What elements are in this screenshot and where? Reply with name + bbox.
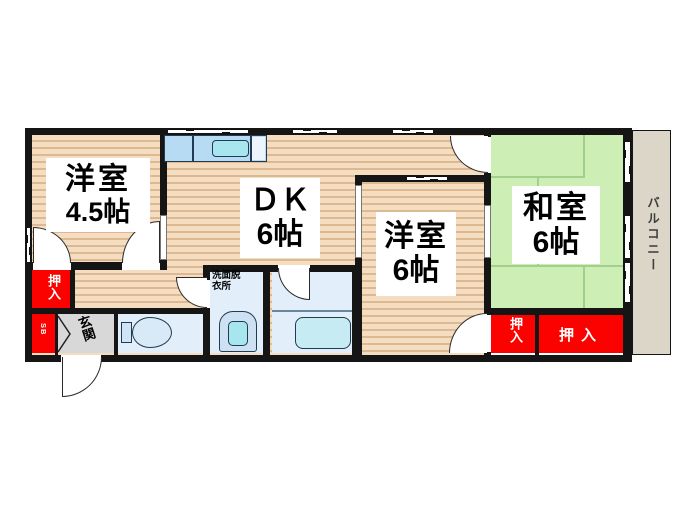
- room-name: 洋室: [46, 163, 150, 197]
- washroom-label-line1: 洗面脱: [212, 271, 241, 282]
- kitchen-sink: [212, 140, 249, 157]
- door-opening: [33, 262, 71, 270]
- window-icon: [293, 129, 337, 134]
- kitchen-counter-end: [252, 137, 265, 160]
- room-label-western6: 洋室 6帖: [376, 212, 456, 296]
- door-opening: [122, 262, 160, 270]
- closet-wide-label: 押入: [539, 324, 623, 345]
- window-icon: [407, 176, 447, 181]
- balcony-label: バルコニー: [643, 196, 662, 296]
- floor-plan: バルコニー: [0, 0, 700, 525]
- room-size: 4.5帖: [46, 197, 150, 227]
- shoebox-label: SB: [39, 323, 48, 343]
- wall-bottom: [25, 355, 632, 362]
- sliding-door-icon: [355, 185, 362, 258]
- washroom-label-line2: 衣所: [212, 282, 241, 293]
- room-name: 洋室: [376, 220, 456, 254]
- room-label-dk: ＤＫ 6帖: [240, 178, 320, 258]
- entrance-door-arc-icon: [62, 357, 102, 397]
- room-name: 和室: [512, 191, 600, 226]
- tatami-mat-line: [491, 265, 623, 267]
- window-icon: [624, 142, 631, 182]
- bathroom-step-line: [272, 310, 352, 312]
- bifold-door-icon: [57, 315, 73, 353]
- sliding-door-icon: [484, 205, 491, 258]
- closet-small-label: 押入: [506, 317, 525, 351]
- kitchen-counter-divider: [192, 135, 194, 162]
- room-size: 6帖: [512, 226, 600, 260]
- washbasin-bowl: [228, 321, 248, 346]
- tatami-mat-line: [583, 266, 585, 308]
- window-icon: [393, 129, 433, 134]
- tatami-mat-line: [583, 135, 585, 178]
- bathtub: [295, 317, 351, 349]
- closet-left-label: 押入: [44, 274, 63, 306]
- room-size: 6帖: [240, 218, 320, 252]
- window-icon: [624, 263, 631, 302]
- washroom-label: 洗面脱 衣所: [212, 271, 241, 292]
- wall-genkan-toilet: [114, 313, 118, 355]
- window-icon: [624, 216, 631, 258]
- wall-bath-western6: [352, 265, 362, 362]
- room-label-japanese6: 和室 6帖: [512, 186, 600, 264]
- room-label-western45: 洋室 4.5帖: [46, 158, 150, 232]
- room-size: 6帖: [376, 254, 456, 288]
- wall-washroom-bath: [263, 272, 270, 355]
- room-name: ＤＫ: [240, 184, 320, 218]
- toilet-tank: [121, 322, 132, 343]
- wall-japanese-bottom: [484, 308, 632, 315]
- window-icon: [168, 129, 248, 134]
- wall-closet-corridor: [70, 270, 75, 313]
- window-icon: [26, 228, 31, 262]
- sliding-door-icon: [160, 215, 167, 260]
